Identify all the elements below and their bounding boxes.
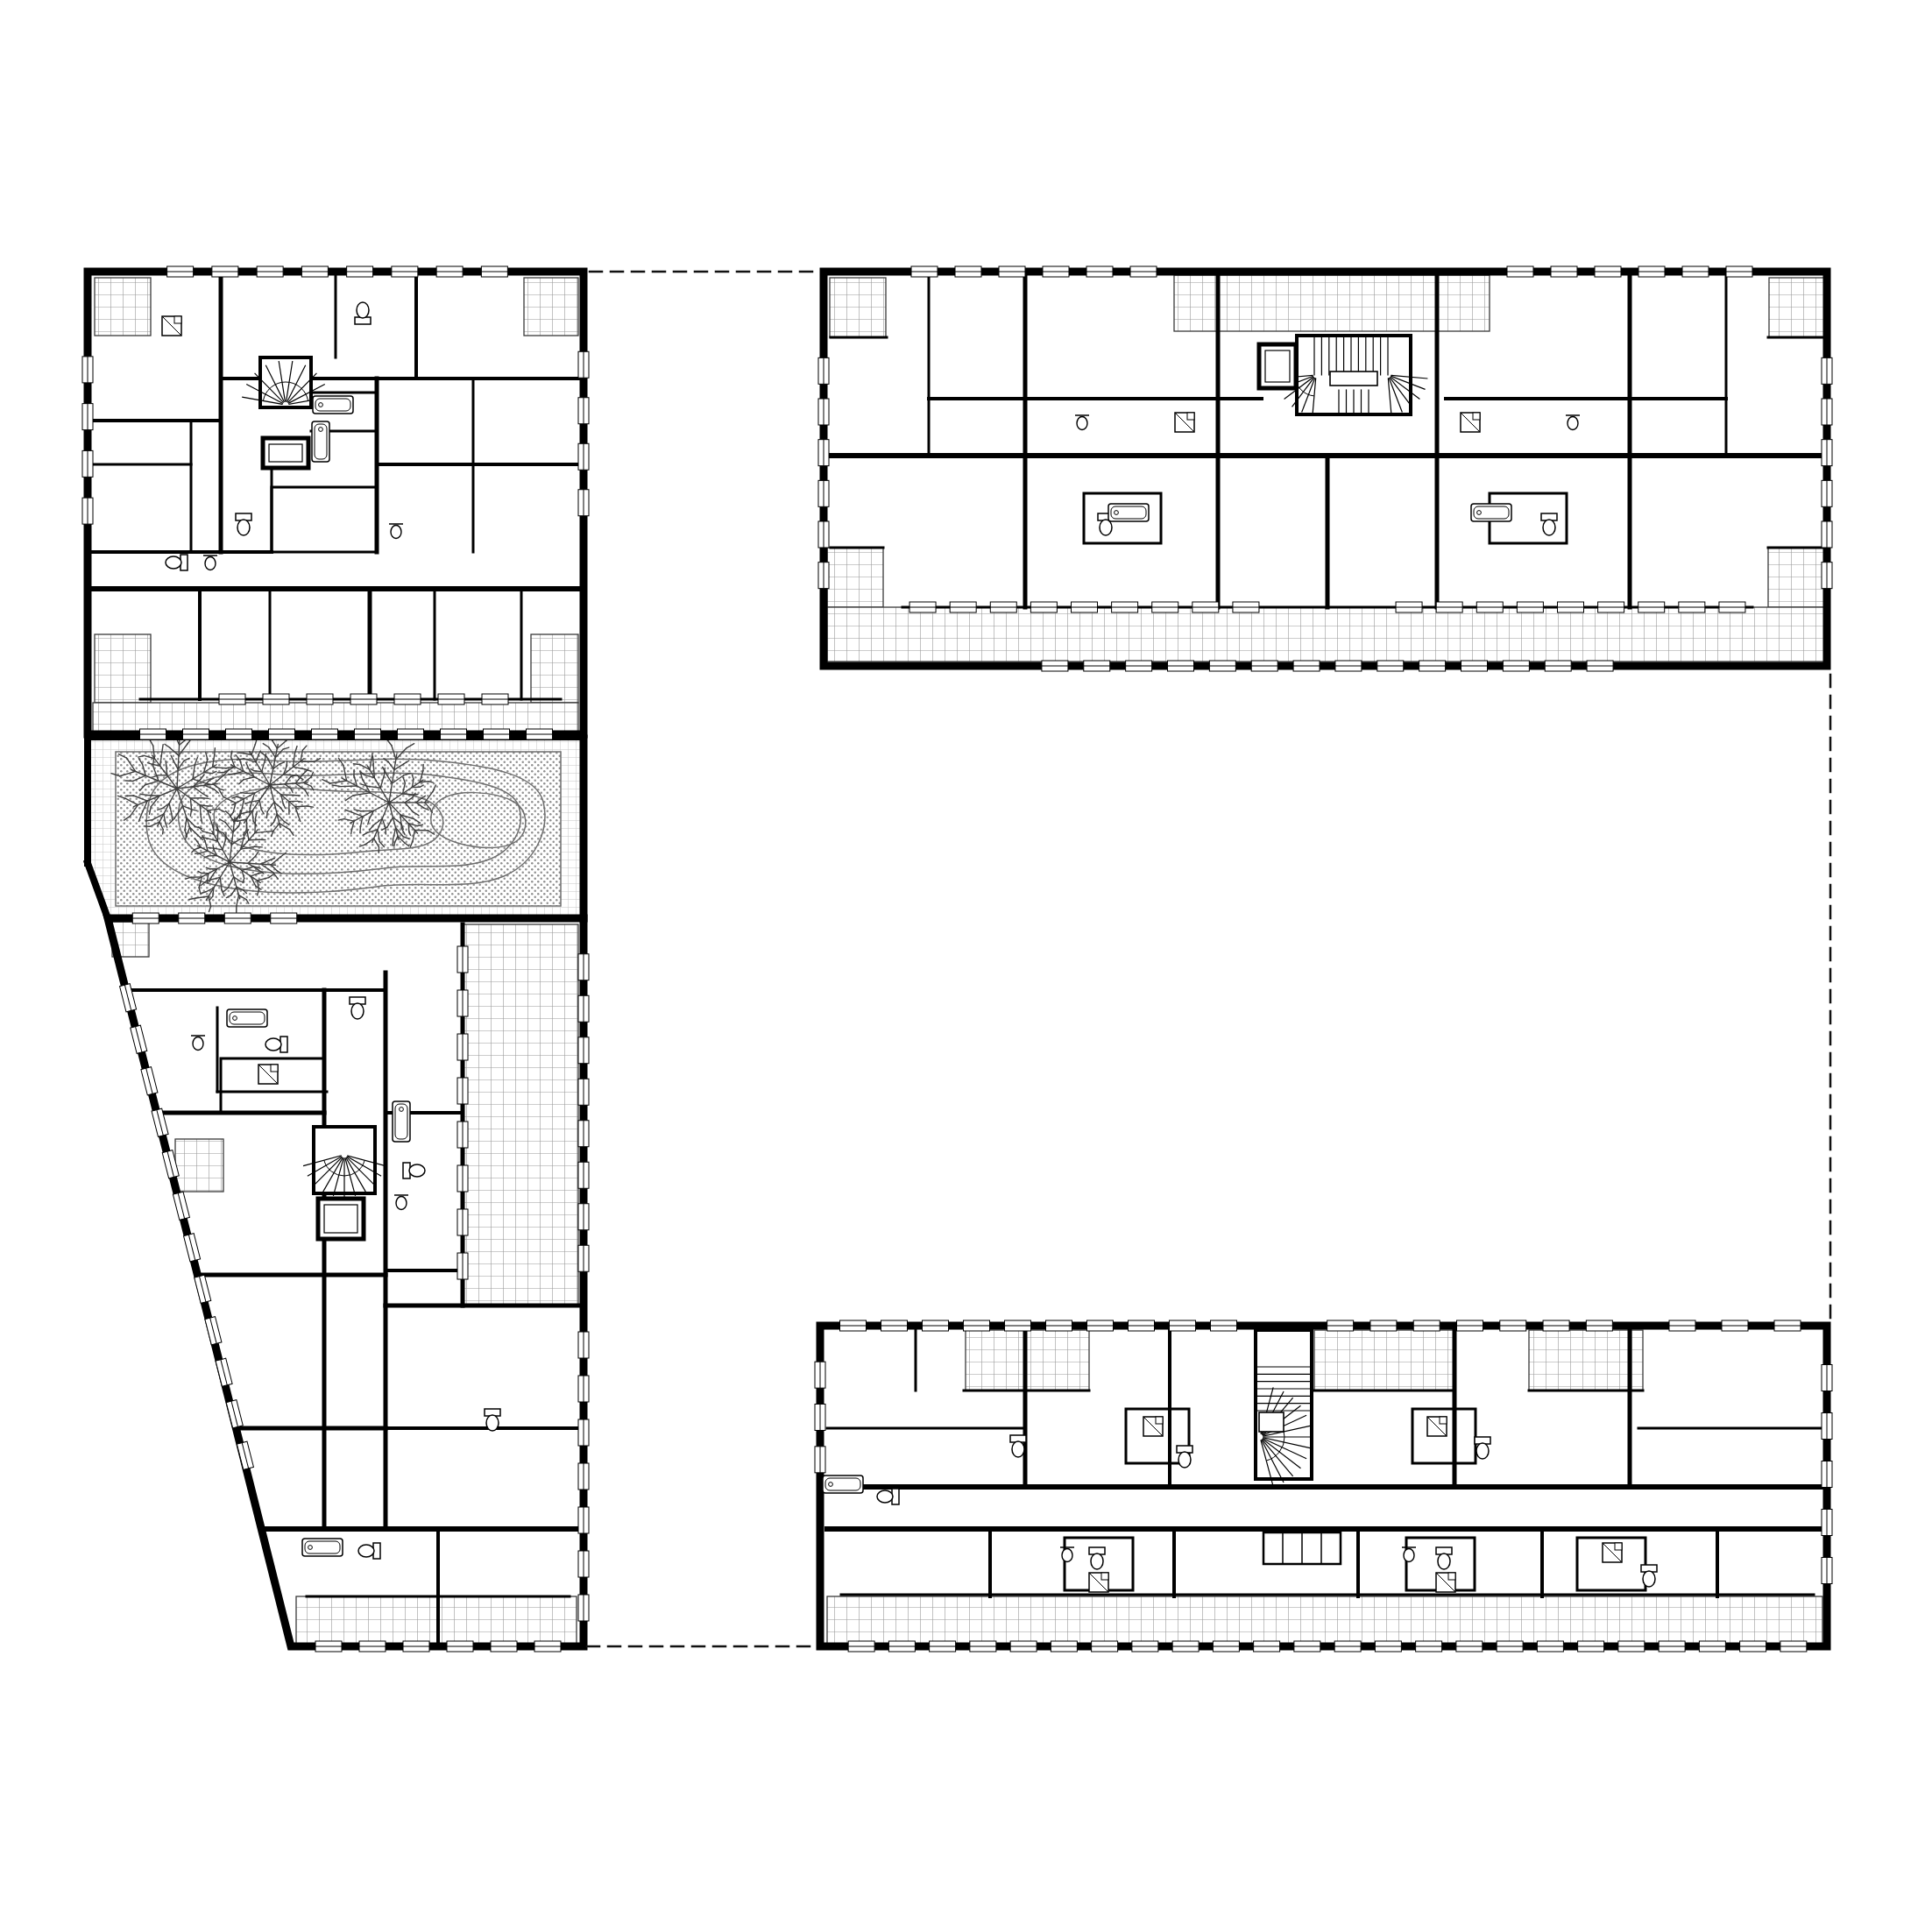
- window: [848, 1641, 874, 1652]
- terrace-tile: [830, 278, 886, 337]
- window: [1087, 1320, 1114, 1331]
- window: [1558, 602, 1584, 612]
- fixture-toilet: [1475, 1437, 1490, 1459]
- window: [1233, 602, 1259, 612]
- window: [1476, 602, 1503, 612]
- window: [881, 1320, 908, 1331]
- fixture-toilet: [355, 302, 371, 324]
- fixture-shower: [1436, 1573, 1455, 1592]
- window: [1030, 602, 1057, 612]
- window: [394, 694, 421, 704]
- window: [447, 1641, 473, 1652]
- sink-basin: [193, 1037, 203, 1051]
- window: [392, 266, 418, 277]
- window: [1112, 602, 1138, 612]
- window: [1293, 661, 1320, 671]
- window: [1822, 563, 1832, 589]
- window: [271, 913, 297, 924]
- window: [482, 694, 508, 704]
- stair-core: [260, 357, 311, 407]
- window: [1043, 266, 1069, 277]
- window: [183, 729, 209, 740]
- toilet-bowl: [265, 1038, 281, 1051]
- tree-twig: [301, 761, 314, 762]
- window: [457, 1209, 468, 1235]
- terrace-tile: [827, 1596, 1822, 1644]
- terrace-tile: [827, 548, 883, 607]
- window: [818, 563, 829, 589]
- tree-twig: [163, 830, 164, 834]
- tree-twig: [229, 774, 234, 775]
- window: [818, 357, 829, 384]
- window: [1774, 1320, 1801, 1331]
- window: [1209, 661, 1235, 671]
- stair-landing: [1259, 1412, 1284, 1432]
- window: [815, 1362, 825, 1388]
- window: [1822, 357, 1832, 384]
- toilet-bowl: [1476, 1443, 1489, 1459]
- window: [1507, 266, 1533, 277]
- window: [578, 1204, 589, 1230]
- bathtub-drain: [319, 403, 323, 407]
- tree-twig: [209, 847, 214, 848]
- window: [1587, 661, 1613, 671]
- window: [1254, 1641, 1280, 1652]
- terrace-tile: [175, 1139, 223, 1192]
- window: [930, 1641, 956, 1652]
- toilet-bowl: [351, 1003, 364, 1019]
- window: [1586, 1320, 1612, 1331]
- tree-twig: [394, 842, 395, 846]
- window: [578, 995, 589, 1022]
- fixture-tub_v: [393, 1101, 410, 1142]
- sink-basin: [396, 1197, 407, 1210]
- window: [1537, 1641, 1563, 1652]
- shower-valve: [1448, 1573, 1455, 1580]
- toilet-bowl: [1543, 520, 1555, 535]
- tree-trunk: [228, 860, 231, 864]
- tree-trunk: [268, 783, 272, 787]
- window: [578, 1419, 589, 1446]
- window: [1456, 1641, 1483, 1652]
- window: [578, 1162, 589, 1188]
- window: [1679, 602, 1705, 612]
- window: [1172, 1641, 1199, 1652]
- window: [888, 1641, 915, 1652]
- window: [1334, 1641, 1361, 1652]
- window: [964, 1320, 990, 1331]
- window: [999, 266, 1025, 277]
- sink-basin: [1062, 1549, 1072, 1562]
- window: [840, 1320, 867, 1331]
- fixture-tub_h: [313, 396, 353, 414]
- window: [257, 266, 283, 277]
- window: [1436, 602, 1462, 612]
- window: [1413, 1320, 1440, 1331]
- window: [403, 1641, 429, 1652]
- window: [950, 602, 976, 612]
- tree-twig: [255, 846, 263, 847]
- window: [578, 1507, 589, 1533]
- window: [911, 266, 938, 277]
- window: [307, 694, 333, 704]
- terrace-tile: [1769, 278, 1825, 337]
- window: [1051, 1641, 1077, 1652]
- fixture-shower: [1175, 413, 1194, 432]
- window: [1126, 661, 1152, 671]
- tree-twig: [202, 798, 209, 799]
- window: [1740, 1641, 1766, 1652]
- shower-valve: [1440, 1417, 1447, 1424]
- window: [1132, 1641, 1158, 1652]
- shower-valve: [1101, 1573, 1108, 1580]
- window: [578, 351, 589, 378]
- window: [1822, 1461, 1832, 1488]
- site-plan-svg: [0, 0, 1932, 1932]
- window: [818, 521, 829, 548]
- window: [1377, 661, 1404, 671]
- stair-landing: [1330, 372, 1377, 386]
- window: [1010, 1641, 1037, 1652]
- fixture-toilet: [1541, 513, 1557, 535]
- window: [1211, 1320, 1237, 1331]
- bathtub-drain: [1115, 511, 1119, 515]
- fixture-tub_h: [302, 1539, 343, 1556]
- bathtub-drain: [319, 428, 323, 432]
- window: [1822, 521, 1832, 548]
- terrace-tile: [463, 924, 578, 1306]
- tree-twig: [295, 806, 307, 807]
- toilet-bowl: [409, 1164, 425, 1177]
- window: [438, 694, 464, 704]
- window: [578, 1079, 589, 1105]
- fixture-shower: [1603, 1543, 1622, 1562]
- toilet-bowl: [166, 556, 181, 569]
- toilet-bowl: [1438, 1553, 1450, 1569]
- fixture-toilet: [265, 1037, 287, 1052]
- window: [269, 729, 295, 740]
- window: [1578, 1641, 1604, 1652]
- window: [534, 1641, 561, 1652]
- fixture-shower: [162, 316, 181, 336]
- window: [1517, 602, 1543, 612]
- window: [818, 480, 829, 506]
- tree-twig: [217, 824, 218, 831]
- tree-twig: [147, 795, 159, 796]
- window: [1822, 480, 1832, 506]
- window: [1726, 266, 1752, 277]
- window: [140, 729, 166, 740]
- fixture-toilet: [236, 513, 251, 535]
- tree-twig: [208, 880, 209, 883]
- window: [1822, 440, 1832, 466]
- window: [1461, 661, 1488, 671]
- tree-twig: [249, 839, 259, 840]
- window: [224, 913, 251, 924]
- tree-twig: [351, 829, 352, 833]
- window: [301, 266, 328, 277]
- window: [578, 398, 589, 424]
- fixture-tub_h: [1471, 504, 1511, 521]
- window: [818, 399, 829, 425]
- sink-basin: [1077, 417, 1087, 430]
- window: [219, 694, 245, 704]
- window: [359, 1641, 386, 1652]
- tree-twig: [254, 771, 261, 772]
- window: [1551, 266, 1577, 277]
- window: [179, 913, 205, 924]
- window: [955, 266, 981, 277]
- window: [481, 266, 507, 277]
- tree-twig: [215, 748, 216, 755]
- window: [491, 1641, 517, 1652]
- window: [457, 1034, 468, 1060]
- tree-twig: [166, 761, 166, 766]
- window: [1251, 661, 1277, 671]
- window: [1370, 1320, 1397, 1331]
- window: [436, 266, 463, 277]
- window: [815, 1447, 825, 1473]
- bathtub-drain: [1477, 511, 1482, 515]
- tree-twig: [166, 766, 167, 775]
- window: [457, 1078, 468, 1104]
- window: [1168, 661, 1194, 671]
- window: [578, 1551, 589, 1577]
- window: [1396, 602, 1422, 612]
- fixture-toilet: [1641, 1565, 1657, 1587]
- bathtub-drain: [308, 1546, 313, 1550]
- window: [527, 729, 553, 740]
- fixture-toilet: [403, 1163, 425, 1178]
- shower-valve: [271, 1065, 278, 1072]
- window: [347, 266, 373, 277]
- window: [1719, 602, 1745, 612]
- tree-trunk: [175, 787, 179, 790]
- sink-basin: [391, 526, 401, 539]
- window: [815, 1405, 825, 1431]
- sink-basin: [205, 557, 216, 570]
- terrace-tile: [827, 607, 1824, 662]
- window: [1618, 1641, 1645, 1652]
- tree-twig: [241, 793, 246, 794]
- sink-basin: [1568, 417, 1578, 430]
- terrace-tile: [1529, 1330, 1643, 1391]
- window: [1294, 1641, 1320, 1652]
- window: [82, 450, 93, 477]
- window: [457, 1253, 468, 1279]
- window: [970, 1641, 996, 1652]
- window: [1084, 661, 1110, 671]
- window: [82, 357, 93, 383]
- tree-twig: [240, 810, 241, 816]
- tree-twig: [281, 795, 294, 796]
- fixture-toilet: [358, 1543, 380, 1559]
- fixture-toilet: [1177, 1446, 1192, 1468]
- terrace-tile: [95, 278, 151, 336]
- toilet-bowl: [237, 520, 250, 535]
- tree-twig: [298, 801, 302, 802]
- fixture-tub_h: [823, 1476, 863, 1493]
- fixture-toilet: [1436, 1547, 1452, 1569]
- window: [1042, 661, 1068, 671]
- window: [1503, 661, 1529, 671]
- tree-twig: [408, 824, 409, 832]
- toilet-bowl: [358, 1545, 374, 1557]
- window: [1500, 1320, 1526, 1331]
- tree-trunk: [387, 801, 391, 804]
- window: [578, 1595, 589, 1621]
- window: [82, 404, 93, 430]
- window: [312, 729, 338, 740]
- shower-valve: [1156, 1417, 1163, 1424]
- window: [1213, 1641, 1239, 1652]
- window: [398, 729, 424, 740]
- window: [457, 1122, 468, 1148]
- window: [578, 954, 589, 980]
- tree-twig: [213, 888, 214, 895]
- tree-twig: [372, 756, 373, 764]
- terrace-tile: [524, 278, 578, 336]
- window: [1072, 602, 1098, 612]
- tree-twig: [284, 775, 298, 775]
- terrace-tile: [95, 634, 151, 703]
- toilet-bowl: [486, 1415, 499, 1431]
- shower-valve: [1473, 413, 1480, 420]
- fixture-tub_h: [1108, 504, 1149, 521]
- window: [990, 602, 1016, 612]
- window: [1595, 266, 1621, 277]
- window: [315, 1641, 342, 1652]
- window: [1086, 266, 1113, 277]
- tree-twig: [266, 811, 267, 817]
- window: [1416, 1641, 1442, 1652]
- toilet-bowl: [877, 1490, 893, 1503]
- fixture-toilet: [877, 1489, 899, 1504]
- window: [1170, 1320, 1196, 1331]
- window: [1419, 661, 1446, 671]
- window: [1638, 602, 1665, 612]
- window: [1699, 1641, 1725, 1652]
- window: [1130, 266, 1157, 277]
- window: [457, 1165, 468, 1192]
- window: [578, 1121, 589, 1147]
- window: [226, 729, 252, 740]
- window: [457, 990, 468, 1016]
- window: [355, 729, 381, 740]
- elevator-car: [1265, 350, 1290, 382]
- shower-valve: [1615, 1543, 1622, 1550]
- tree-twig: [341, 786, 357, 787]
- tree-twig: [353, 764, 359, 765]
- window: [263, 694, 289, 704]
- fixture-toilet: [350, 997, 365, 1019]
- fixture-shower: [258, 1065, 278, 1084]
- toilet-bowl: [1091, 1553, 1103, 1569]
- terrace-tile: [1768, 548, 1824, 607]
- fixture-toilet: [485, 1409, 500, 1431]
- toilet-bowl: [1012, 1441, 1024, 1457]
- window: [909, 602, 936, 612]
- window: [484, 729, 510, 740]
- floor-plan-page: [0, 0, 1932, 1932]
- window: [578, 1037, 589, 1064]
- terrace-tile: [1174, 275, 1490, 331]
- sink-basin: [1404, 1549, 1414, 1562]
- window: [1822, 1558, 1832, 1584]
- window: [1046, 1320, 1072, 1331]
- shower-valve: [174, 316, 181, 323]
- window: [1598, 602, 1624, 612]
- window: [1822, 1510, 1832, 1536]
- fixture-toilet: [1089, 1547, 1105, 1569]
- window: [1722, 1320, 1748, 1331]
- fixture-shower: [1143, 1417, 1163, 1436]
- tree-twig: [267, 832, 273, 832]
- toilet-bowl: [1178, 1452, 1191, 1468]
- toilet-bowl: [1100, 520, 1112, 535]
- window: [1129, 1320, 1155, 1331]
- window: [1659, 1641, 1685, 1652]
- window: [1497, 1641, 1523, 1652]
- window: [1543, 1320, 1569, 1331]
- window: [350, 694, 377, 704]
- toilet-bowl: [357, 302, 369, 318]
- tree-twig: [172, 814, 173, 820]
- garden-courtyard: [88, 732, 584, 918]
- window: [1669, 1320, 1695, 1331]
- window: [1682, 266, 1709, 277]
- window: [578, 443, 589, 470]
- terrace-tile: [531, 634, 578, 703]
- bathtub-drain: [233, 1016, 237, 1021]
- window: [1375, 1641, 1401, 1652]
- window: [1152, 602, 1178, 612]
- window: [818, 440, 829, 466]
- fixture-toilet: [1010, 1435, 1026, 1457]
- window: [578, 1463, 589, 1490]
- window: [82, 498, 93, 524]
- bathtub-drain: [400, 1108, 404, 1112]
- window: [1638, 266, 1665, 277]
- fixture-shower: [1089, 1573, 1108, 1592]
- elevator-car: [269, 444, 302, 462]
- window: [1335, 661, 1362, 671]
- window: [1327, 1320, 1354, 1331]
- toilet-bowl: [1643, 1571, 1655, 1587]
- window: [441, 729, 467, 740]
- fixture-shower: [1427, 1417, 1447, 1436]
- fixture-toilet: [166, 555, 188, 570]
- window: [1092, 1641, 1118, 1652]
- bathtub-drain: [829, 1483, 833, 1487]
- window: [578, 1245, 589, 1271]
- window: [1457, 1320, 1483, 1331]
- window: [212, 266, 238, 277]
- window: [578, 1376, 589, 1402]
- window: [923, 1320, 949, 1331]
- elevator-car: [324, 1205, 357, 1233]
- terrace-tile: [1314, 1330, 1454, 1391]
- window: [457, 946, 468, 973]
- window: [1822, 1413, 1832, 1440]
- fixture-shower: [1461, 413, 1480, 432]
- window: [578, 1332, 589, 1358]
- window: [1822, 399, 1832, 425]
- shower-valve: [1187, 413, 1194, 420]
- window: [1780, 1641, 1807, 1652]
- window: [167, 266, 194, 277]
- fixture-tub_v: [312, 421, 329, 462]
